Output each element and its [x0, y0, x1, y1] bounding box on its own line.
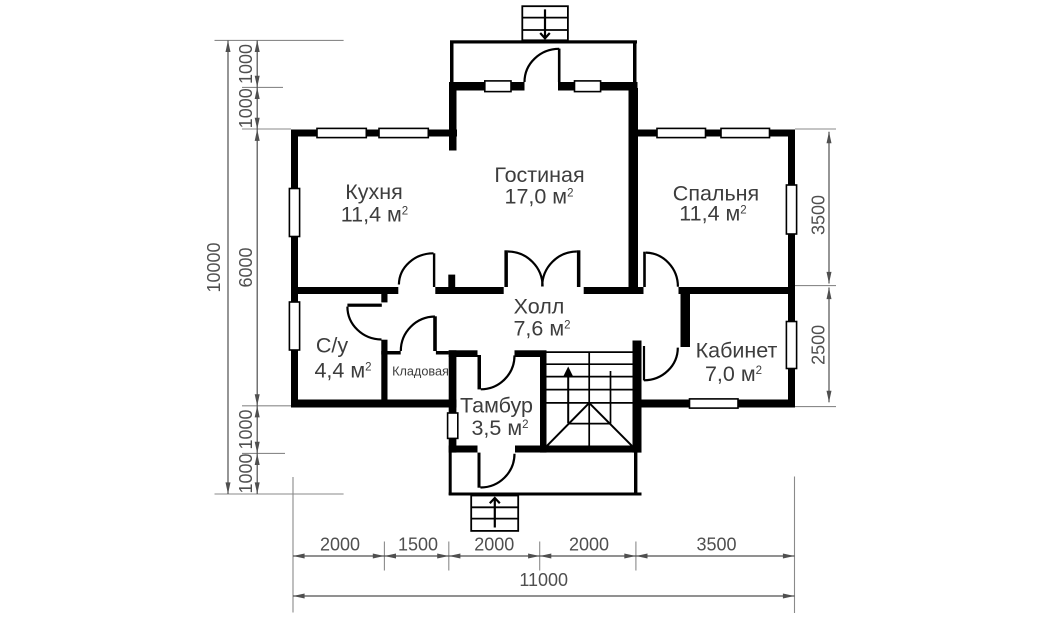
svg-text:Холл: Холл: [514, 295, 565, 319]
svg-text:7,0 м2: 7,0 м2: [705, 362, 762, 386]
svg-text:1500: 1500: [398, 535, 438, 555]
svg-text:11,4 м2: 11,4 м2: [679, 202, 746, 226]
svg-text:1000: 1000: [236, 44, 256, 84]
svg-text:С/у: С/у: [316, 334, 349, 358]
svg-text:11,4 м2: 11,4 м2: [341, 203, 408, 227]
svg-text:Гостиная: Гостиная: [494, 163, 584, 187]
svg-text:1000: 1000: [236, 453, 256, 493]
svg-text:11000: 11000: [519, 570, 568, 590]
svg-text:2000: 2000: [569, 535, 609, 555]
svg-text:7,6 м2: 7,6 м2: [513, 317, 570, 341]
svg-text:3500: 3500: [696, 535, 736, 555]
svg-text:1000: 1000: [236, 409, 256, 449]
svg-text:Тамбур: Тамбур: [460, 394, 533, 418]
svg-text:1000: 1000: [236, 88, 256, 128]
svg-text:2000: 2000: [474, 535, 514, 555]
svg-text:3,5 м2: 3,5 м2: [471, 416, 528, 440]
svg-text:3500: 3500: [809, 195, 829, 235]
svg-text:10000: 10000: [204, 242, 224, 292]
svg-text:4,4 м2: 4,4 м2: [314, 359, 371, 383]
svg-text:6000: 6000: [236, 247, 256, 287]
svg-text:2000: 2000: [320, 535, 360, 555]
svg-text:Кухня: Кухня: [345, 180, 403, 204]
svg-text:Кабинет: Кабинет: [696, 339, 778, 363]
svg-text:17,0 м2: 17,0 м2: [504, 185, 573, 209]
svg-text:2500: 2500: [809, 325, 829, 365]
svg-text:Кладовая: Кладовая: [392, 364, 449, 378]
